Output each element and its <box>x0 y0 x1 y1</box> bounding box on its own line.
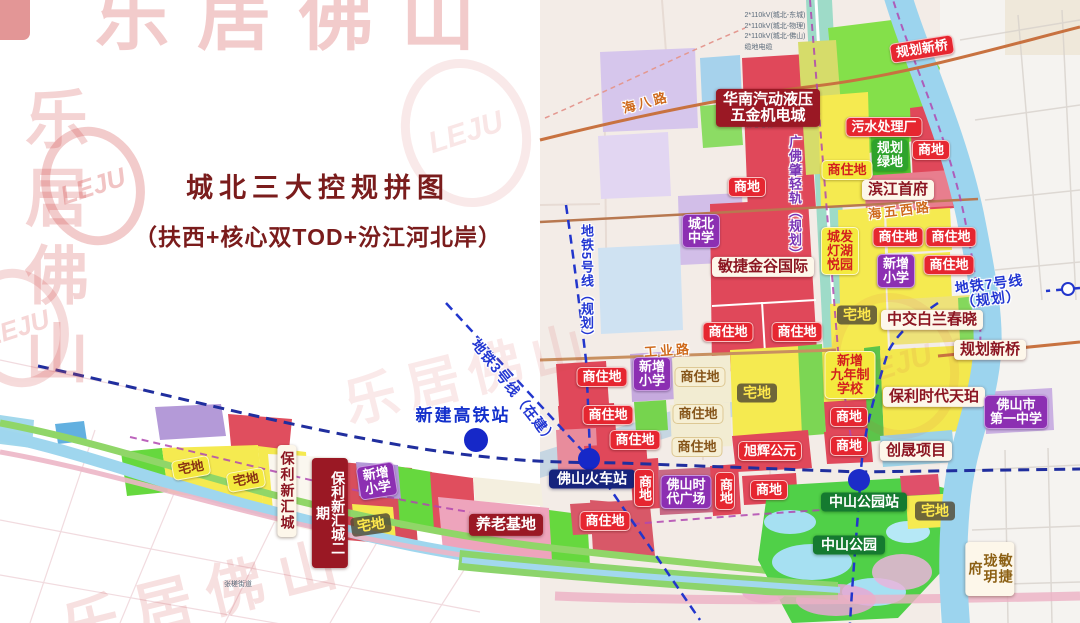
zhongshan-park-label: 中山公园 <box>813 535 885 554</box>
map-label-layer: 规划新桥华南汽动液压 五金机电城污水处理厂规划 绿地商地商住地滨江首府海五西路海… <box>0 0 1080 623</box>
huanan-hardware-city-label: 华南汽动液压 五金机电城 <box>716 89 820 127</box>
foshan-no1-high-school-label: 佛山市 第一中学 <box>984 395 1048 429</box>
poly-times-tianpo-label: 保利时代天珀 <box>883 387 985 407</box>
minjie-longyue-label: 敏捷珑玥府 <box>965 542 1014 596</box>
commercial-residential-label: 商住地 <box>582 405 633 425</box>
planning-map-page: 乐居佛山 乐居佛山 LEJU LEJU LEJU LEJU 乐居佛山 乐居佛山 … <box>0 0 1080 623</box>
commercial-residential-label: 商住地 <box>925 227 976 247</box>
metro-line5-planned-label: 地铁5号线（规划） <box>579 224 593 344</box>
new-nine-year-school-label: 新增 九年制 学校 <box>824 351 875 399</box>
zhangcha-street-label: 张槎街道 <box>224 580 252 591</box>
commercial-residential-label: 商住地 <box>821 160 872 180</box>
commercial-residential-label: 商住地 <box>579 511 630 531</box>
binjiang-shoufu-label: 滨江首府 <box>862 180 934 200</box>
zhongshan-park-station-label: 中山公园站 <box>821 492 907 511</box>
commercial-residential-label: 商住地 <box>923 255 974 275</box>
sewage-plant-label: 污水处理厂 <box>845 117 922 137</box>
commercial-land-label: 商地 <box>715 472 735 510</box>
xuhui-gongyuan-label: 旭辉公元 <box>738 441 802 461</box>
planned-bridge-south-label: 规划新桥 <box>954 340 1026 360</box>
new-primary-school-label: 新增 小学 <box>877 254 915 288</box>
commercial-land-label: 商地 <box>728 177 766 197</box>
commercial-residential-label: 商住地 <box>674 367 725 387</box>
commercial-land-label: 商地 <box>830 407 868 427</box>
commercial-residential-label: 商住地 <box>771 322 822 342</box>
chengfa-denghu-yueyuan-label: 城发 灯湖 悦园 <box>821 227 859 275</box>
chuangsheng-project-label: 创晟项目 <box>880 441 952 461</box>
foshan-railway-station-label: 佛山火车站 <box>549 469 635 488</box>
planned-green-space-label: 规划 绿地 <box>872 139 908 171</box>
metro-line3-under-construction-label: 地铁3号线（在建） <box>468 337 559 448</box>
commercial-residential-label: 商住地 <box>872 227 923 247</box>
residential-land-label: 宅地 <box>350 513 392 537</box>
commercial-residential-label: 商住地 <box>609 430 660 450</box>
residential-land-label: 宅地 <box>737 383 777 402</box>
new-primary-school-label: 新增 小学 <box>356 461 399 501</box>
residential-land-label: 宅地 <box>915 501 955 520</box>
chengbei-middle-school-label: 城北 中学 <box>682 214 720 248</box>
commercial-residential-label: 商住地 <box>576 367 627 387</box>
metro-line7-planned-label: 地铁7号线（规划） <box>943 272 1036 313</box>
residential-land-label: 宅地 <box>226 467 267 493</box>
commercial-residential-label: 商住地 <box>702 322 753 342</box>
commercial-land-label: 商地 <box>912 140 950 160</box>
haiwu-west-road-label: 海五西路 <box>867 200 932 222</box>
haiba-road-label: 海八路 <box>621 90 671 116</box>
new-hsr-station-label: 新建高铁站 <box>416 407 511 425</box>
commercial-land-label: 商地 <box>830 436 868 456</box>
residential-land-label: 宅地 <box>171 455 212 481</box>
commercial-residential-label: 商住地 <box>672 404 723 424</box>
power-line-note: 2*110kV(城北-东城) 2*110kV(城北-物理) 2*110kV(城北… <box>745 11 806 53</box>
residential-land-label: 宅地 <box>837 305 877 324</box>
foshan-times-plaza-label: 佛山时 代广场 <box>660 475 711 509</box>
poly-xinhui-city-phase2-label: 保利新汇城二期 <box>312 458 348 568</box>
poly-xinhui-city-label: 保利新汇城 <box>277 445 296 537</box>
commercial-land-label: 商地 <box>634 469 654 507</box>
guangfozhao-light-rail-label: 广佛肇轻轨（规划） <box>787 135 801 261</box>
new-primary-school-label: 新增 小学 <box>633 357 671 391</box>
elderly-care-base-label: 养老基地 <box>469 514 543 536</box>
commercial-residential-label: 商住地 <box>671 437 722 457</box>
commercial-land-label: 商地 <box>750 480 788 500</box>
zhongjiao-bailan-chunxiao-label: 中交白兰春晓 <box>881 310 983 330</box>
planned-bridge-north-label: 规划新桥 <box>889 34 955 64</box>
